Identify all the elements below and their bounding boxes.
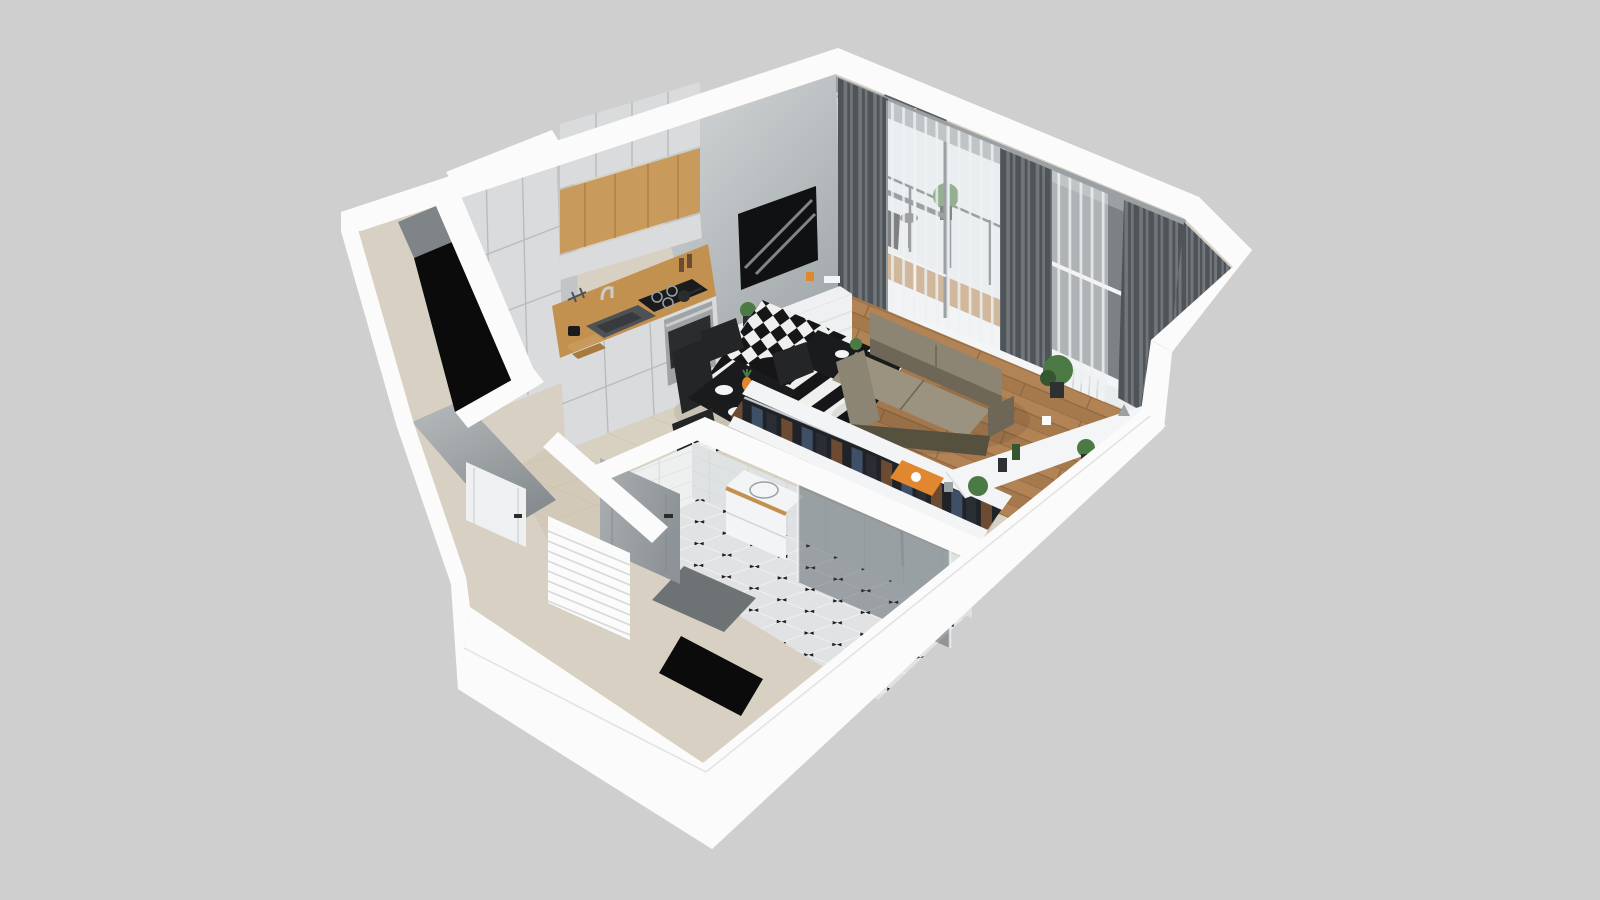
dark-vase [998,458,1007,472]
books [824,276,840,283]
hall-door-handle [514,514,522,518]
sheer-panel-mid [948,126,1006,352]
screenshot-stage [0,0,1600,900]
green-bottle [1012,444,1020,460]
yellow-mug [806,272,814,281]
socket-plate [1042,416,1051,425]
plant-large-pot [1050,382,1064,398]
pepper-mill [679,258,684,272]
sheer-panel-left [886,100,950,330]
pepper-mill-2 [687,254,692,268]
tray-mug [944,482,953,492]
curtain-panel-mid [1000,148,1052,372]
floorplan-render [0,0,1600,900]
floor-plant-1 [968,476,988,496]
door-handle [664,514,673,518]
curtain-panel-left [838,78,888,312]
plate-1 [715,385,733,395]
black-pot [568,326,580,336]
table-plant [850,338,862,350]
table-bowl [835,350,849,358]
